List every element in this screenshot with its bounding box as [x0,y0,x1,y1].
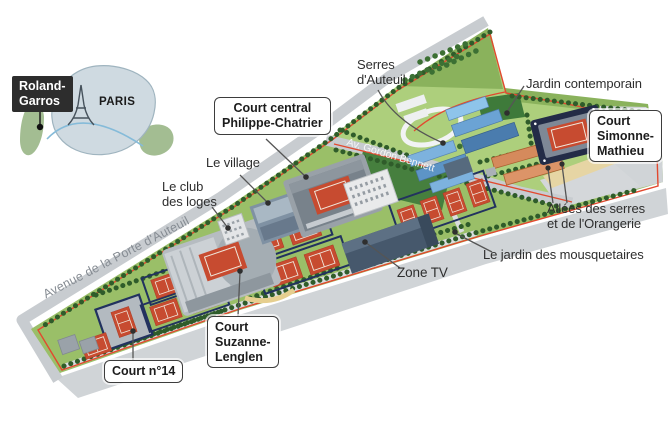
court-simonne-mathieu-box: Court Simonne- Mathieu [589,110,662,162]
le-village-label: Le village [206,156,260,171]
court-14-box: Court n°14 [104,360,183,383]
serres-auteuil-label: Serres d'Auteuil [357,58,406,87]
club-des-loges-label: Le club des loges [162,180,217,209]
marker-dot [37,124,43,130]
court-suzanne-lenglen-box: Court Suzanne- Lenglen [207,316,279,368]
roland-garros-marker-label: Roland- Garros [12,76,73,112]
jardin-contemporain-label: Jardin contemporain [526,77,642,92]
court-central-chatrier-box: Court central Philippe-Chatrier [214,97,331,135]
zone-tv-label: Zone TV [397,265,448,280]
roland-garros-map-infographic: Roland- Garros PARIS Serres d'Auteuil Ja… [0,0,668,427]
jardin-mousquetaires-label: Le jardin des mousquetaires [483,248,644,263]
allees-serres-orangerie-label: Allées des serres et de l'Orangerie [547,202,645,231]
paris-city-label: PARIS [99,96,135,108]
